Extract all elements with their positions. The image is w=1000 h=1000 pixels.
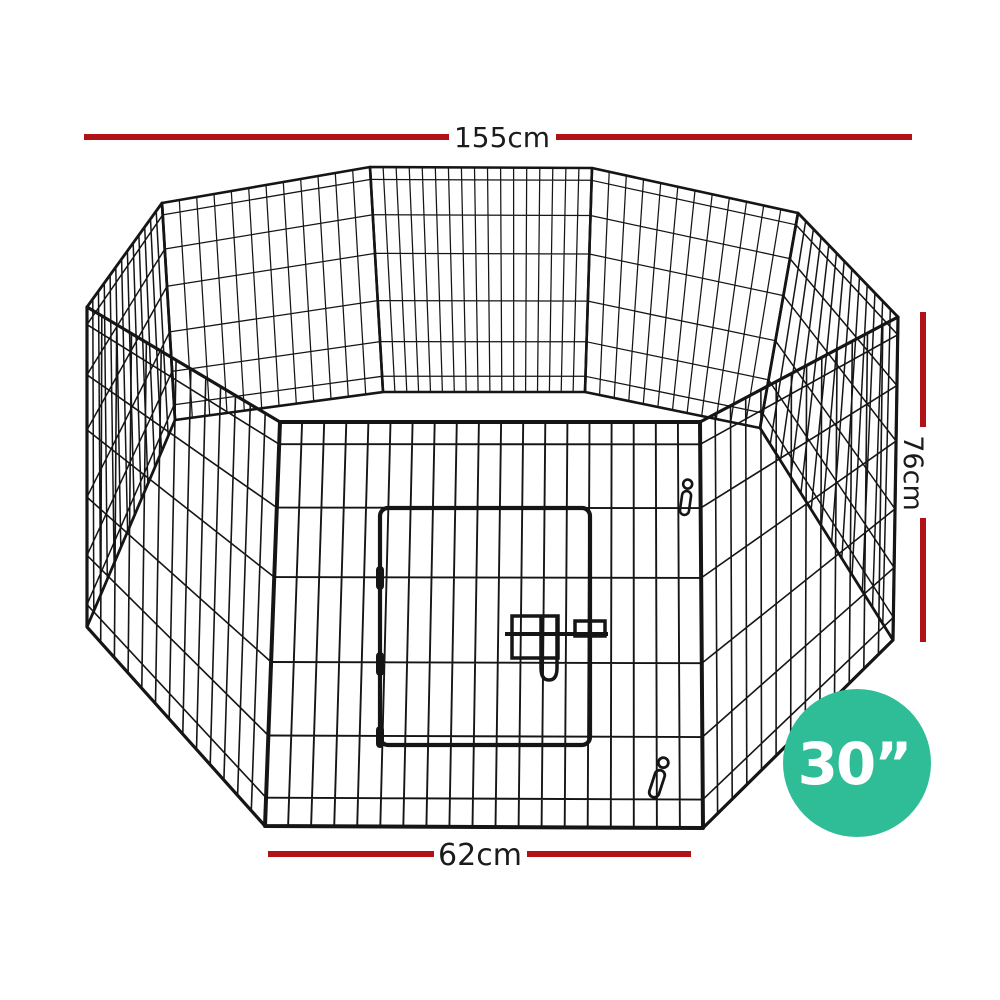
dimension-overall-width: 155cm (84, 121, 912, 154)
dimension-panel-width: 62cm (268, 838, 691, 873)
snap-hook-clip-icon (647, 756, 670, 798)
dimension-panel-height: 76cm (897, 312, 928, 642)
product-dimension-diagram: 155cm 76cm 62cm 30” (0, 0, 1000, 1000)
dimension-panel-height-label: 76cm (897, 435, 928, 511)
panel-back-left (162, 167, 383, 420)
clip-body (679, 490, 691, 515)
panel-front-door (265, 422, 703, 828)
dimension-panel-width-label: 62cm (438, 838, 522, 873)
panel-back-left-mesh (163, 170, 382, 418)
dimension-overall-width-label: 155cm (454, 121, 550, 154)
clip-ring (657, 756, 670, 769)
panel-left-front (87, 307, 280, 826)
snap-hook-clip-icon (679, 479, 693, 515)
panel-back-mesh (371, 167, 592, 392)
playpen-illustration (87, 167, 898, 828)
panel-front-door-mesh (266, 422, 703, 828)
panel-front-door-frame (265, 422, 703, 828)
product-image: 155cm 76cm 62cm 30” (0, 0, 1000, 1000)
clip-ring (683, 479, 693, 489)
panel-right-back-mesh (763, 221, 898, 624)
panel-back (370, 167, 592, 392)
panel-back-frame (370, 167, 592, 392)
panel-right-back-frame (760, 213, 898, 640)
size-badge-label: 30” (798, 730, 911, 798)
panel-right-back (760, 213, 898, 640)
size-badge: 30” (783, 689, 931, 837)
latch-plate (512, 616, 558, 658)
